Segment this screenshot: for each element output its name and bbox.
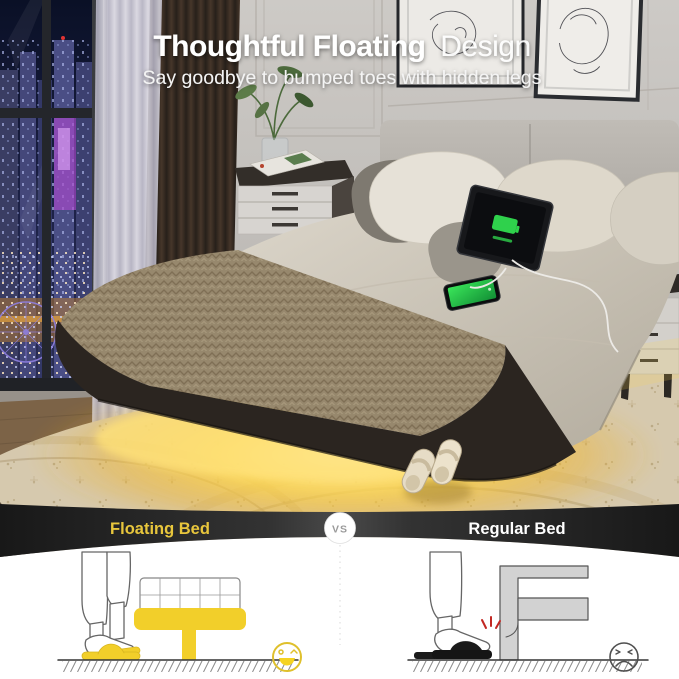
wall-art-right [536, 0, 643, 100]
poster-canvas: Thoughtful Floating Design Say goodbye t… [0, 0, 679, 679]
hidden-center-leg [182, 630, 196, 660]
vs-label: VS [332, 524, 348, 536]
ground-hatch-right [412, 661, 642, 672]
floating-platform [134, 608, 246, 630]
product-poster: Thoughtful Floating Design Say goodbye t… [0, 0, 679, 679]
floating-bed-label: Floating Bed [110, 520, 210, 538]
page-title: Thoughtful Floating Design [153, 30, 530, 63]
title-light: Design [440, 30, 530, 63]
page-subtitle: Say goodbye to bumped toes with hidden l… [143, 67, 542, 89]
regular-bed-rail [518, 598, 588, 620]
vs-badge: VS [325, 513, 356, 544]
title-strong: Thoughtful Floating [153, 30, 425, 63]
ground-hatch-left [62, 661, 294, 672]
regular-bed-label: Regular Bed [468, 520, 565, 538]
